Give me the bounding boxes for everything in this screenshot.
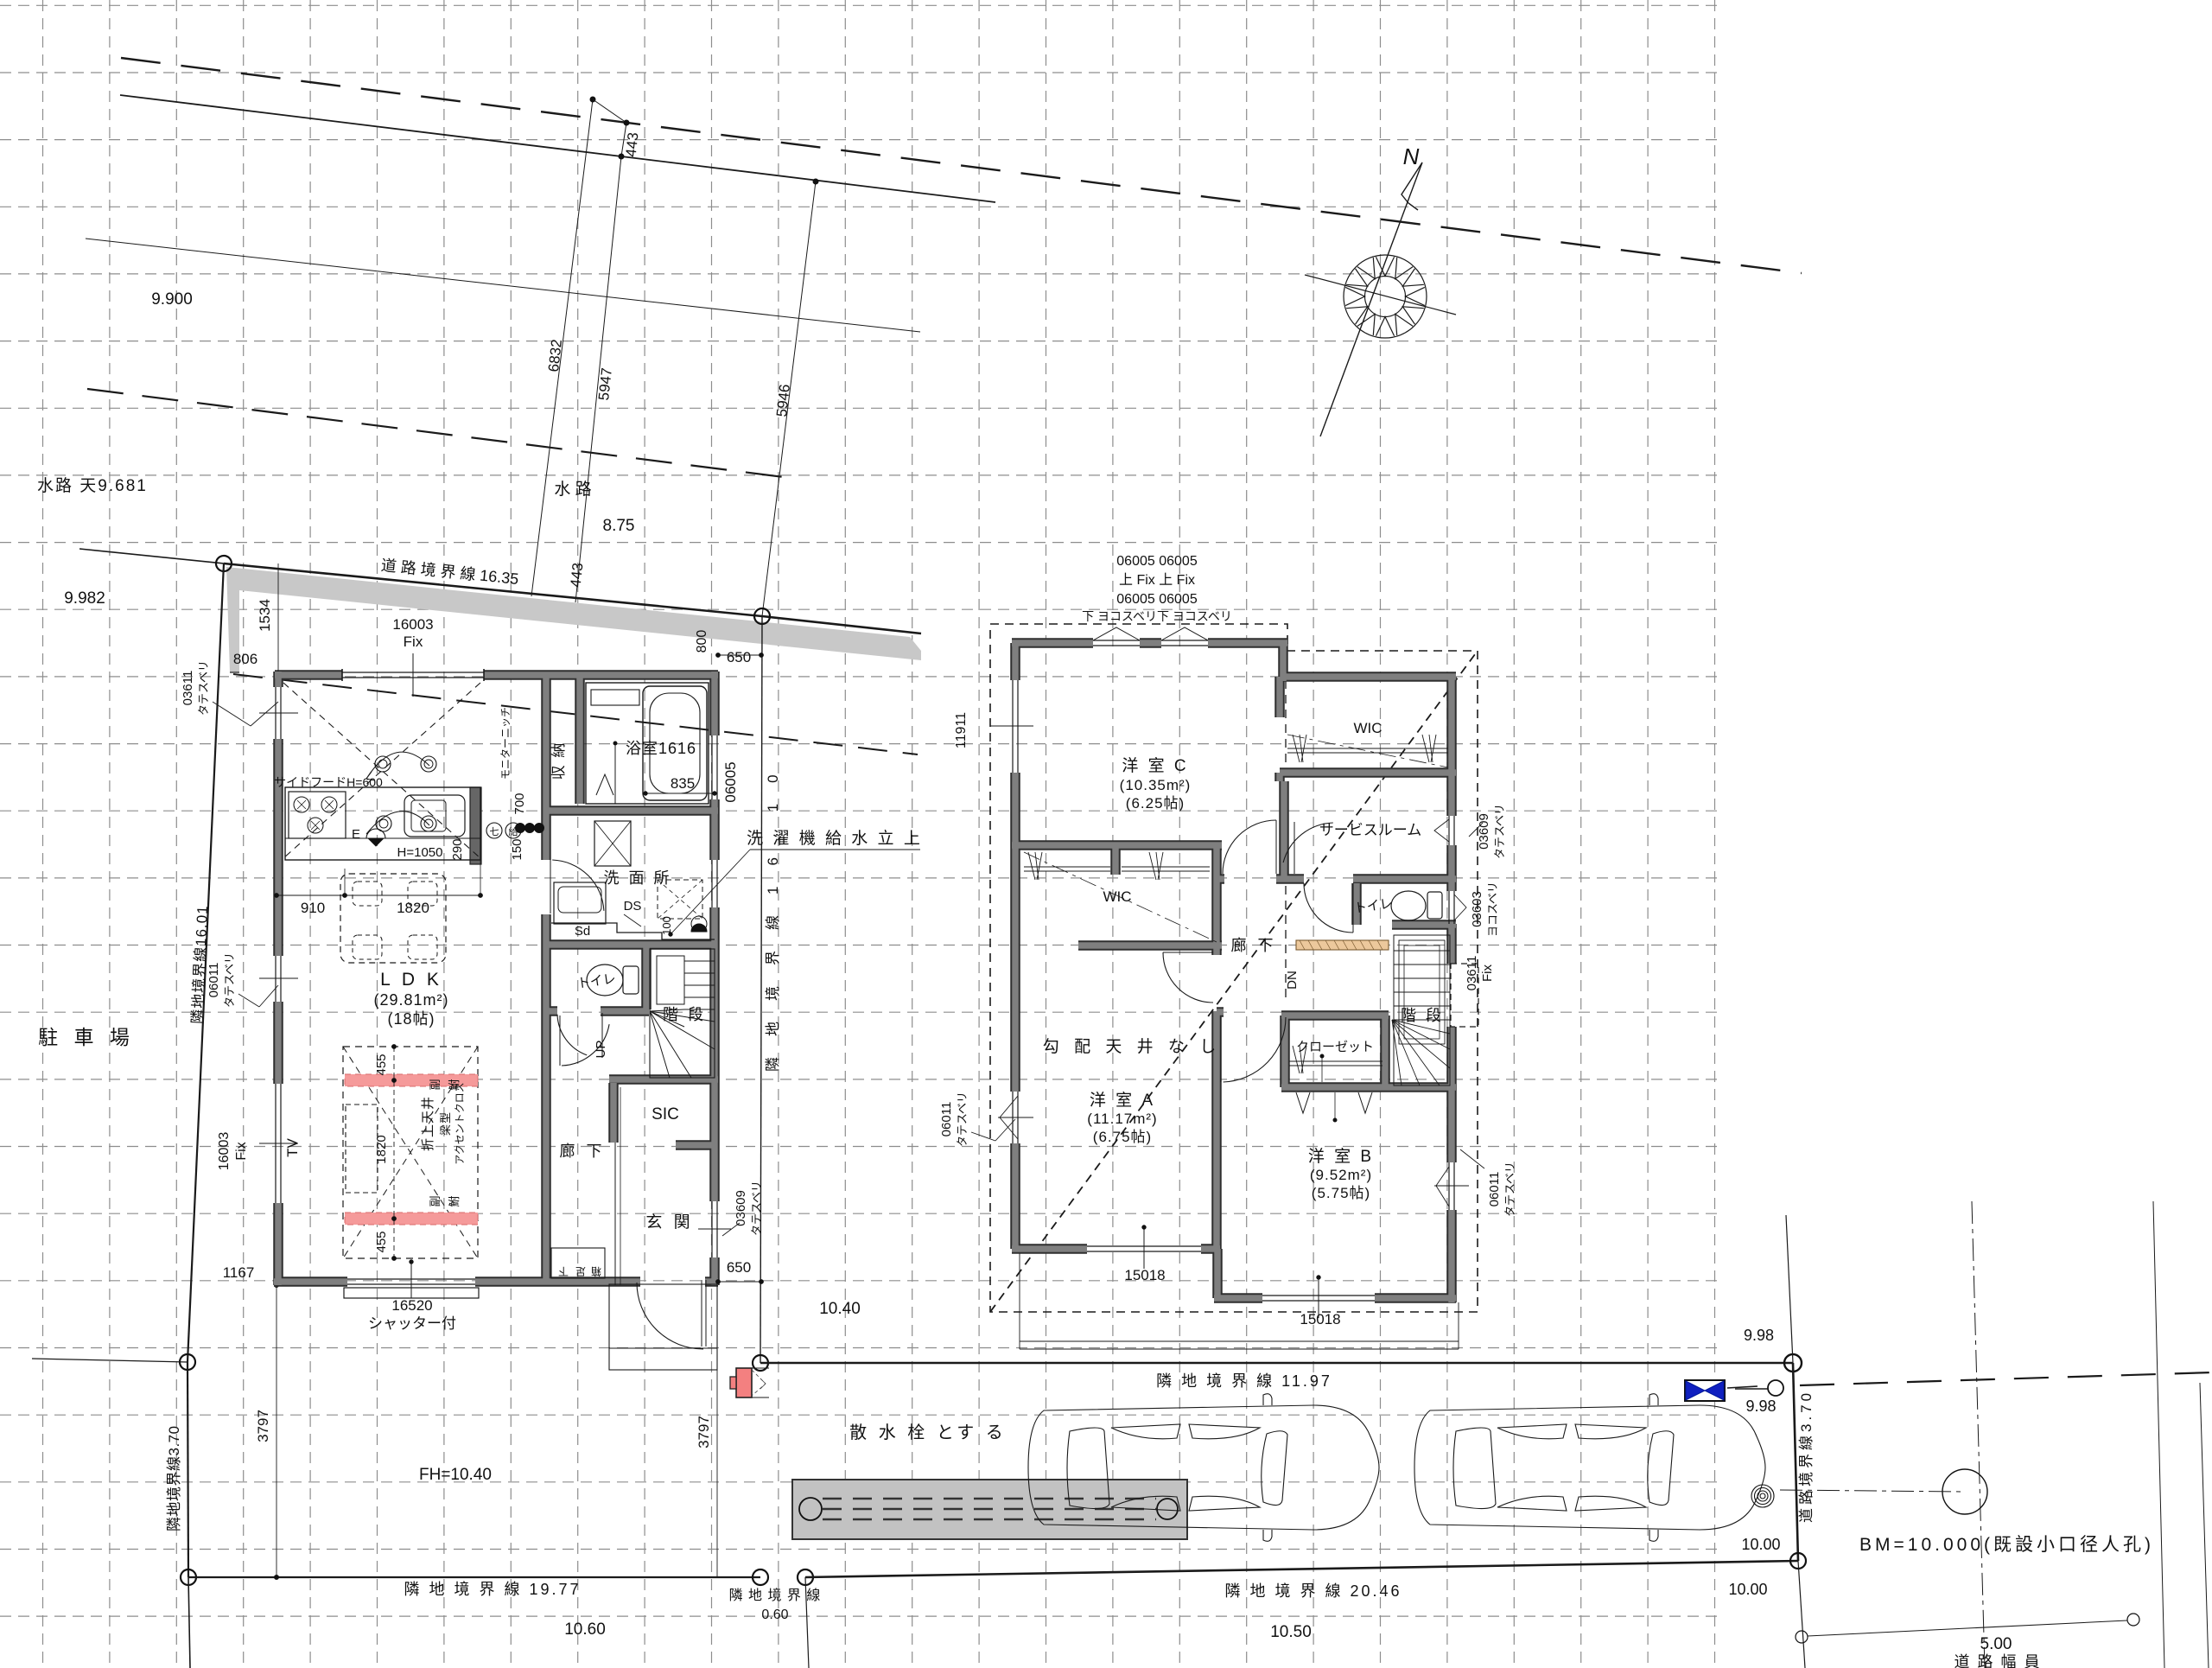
- svg-text:折上天井: 折上天井: [421, 1096, 435, 1151]
- svg-text:タテスベリ: タテスベリ: [1493, 804, 1506, 859]
- svg-text:鮒: 鮒: [448, 1079, 461, 1090]
- svg-text:150: 150: [510, 838, 524, 860]
- svg-text:03611: 03611: [181, 671, 195, 706]
- svg-text:タテスベリ: タテスベリ: [1503, 1162, 1516, 1217]
- svg-text:副: 副: [429, 1079, 442, 1090]
- svg-text:浴室1616: 浴室1616: [626, 740, 696, 757]
- svg-text:(10.35m²): (10.35m²): [1120, 777, 1192, 793]
- svg-text:Fix: Fix: [1480, 965, 1495, 982]
- svg-text:サービスルーム: サービスルーム: [1319, 822, 1422, 838]
- svg-text:290: 290: [450, 838, 465, 860]
- svg-text:洗 濯 機 給 水 立 上: 洗 濯 機 給 水 立 上: [747, 829, 923, 848]
- svg-text:シャッター付: シャッター付: [368, 1315, 456, 1332]
- svg-text:10.50: 10.50: [1270, 1623, 1312, 1641]
- svg-text:455: 455: [374, 1054, 389, 1075]
- svg-text:箱: 箱: [591, 1265, 601, 1278]
- svg-text:道路境界線3.70: 道路境界線3.70: [1798, 1390, 1815, 1523]
- svg-text:タテスベリ: タテスベリ: [956, 1092, 969, 1147]
- svg-text:8.75: 8.75: [603, 517, 635, 535]
- svg-text:FH=10.40: FH=10.40: [419, 1466, 492, 1484]
- svg-text:タテスベリ: タテスベリ: [750, 1181, 763, 1236]
- svg-text:800: 800: [695, 630, 709, 653]
- svg-text:洗 面 所: 洗 面 所: [603, 869, 671, 887]
- svg-text:タテスベリ: タテスベリ: [223, 952, 236, 1008]
- svg-text:06011: 06011: [207, 963, 221, 998]
- svg-text:タテスベリ: タテスベリ: [197, 660, 210, 716]
- svg-text:下 ヨコスベリ下 ヨコスベリ: 下 ヨコスベリ下 ヨコスベリ: [1082, 609, 1232, 623]
- svg-text:06005 06005: 06005 06005: [1116, 554, 1198, 569]
- svg-text:806: 806: [233, 651, 257, 667]
- svg-text:700: 700: [512, 793, 527, 814]
- svg-text:隣地境界線3.70: 隣地境界線3.70: [166, 1425, 182, 1531]
- svg-text:(9.52m²): (9.52m²): [1310, 1167, 1372, 1183]
- svg-text:Fix: Fix: [234, 1142, 249, 1160]
- svg-text:WIC: WIC: [1353, 720, 1382, 736]
- svg-text:5947: 5947: [595, 367, 615, 402]
- svg-text:隣 地 境 界 線 19.77: 隣 地 境 界 線 19.77: [404, 1581, 581, 1598]
- svg-text:TV: TV: [284, 1137, 301, 1156]
- svg-text:(11.17m²): (11.17m²): [1087, 1111, 1157, 1127]
- svg-text:06011: 06011: [1487, 1172, 1502, 1207]
- svg-text:玄 関: 玄 関: [645, 1213, 693, 1232]
- svg-text:水路 天9.681: 水路 天9.681: [37, 476, 148, 495]
- svg-text:Fix: Fix: [404, 633, 423, 650]
- svg-text:06005: 06005: [722, 761, 739, 802]
- svg-text:隣地境界線16.10: 隣地境界線16.10: [765, 754, 781, 1072]
- svg-text:廊 下: 廊 下: [559, 1143, 605, 1160]
- svg-text:L D K: L D K: [380, 970, 442, 990]
- svg-text:16003: 16003: [392, 616, 433, 633]
- svg-text:駐 車 場: 駐 車 場: [38, 1026, 135, 1048]
- svg-text:10.60: 10.60: [564, 1620, 606, 1639]
- svg-text:11911: 11911: [954, 712, 969, 748]
- svg-text:650: 650: [727, 649, 751, 665]
- svg-text:(6.75帖): (6.75帖): [1093, 1129, 1152, 1145]
- svg-text:道 路 幅 員: 道 路 幅 員: [1954, 1653, 2041, 1668]
- svg-text:鮒: 鮒: [448, 1195, 461, 1206]
- svg-text:06011: 06011: [939, 1102, 954, 1137]
- svg-text:1167: 1167: [223, 1264, 255, 1281]
- svg-text:階 段: 階 段: [1401, 1007, 1444, 1024]
- svg-text:03609: 03609: [734, 1190, 748, 1226]
- svg-text:5946: 5946: [773, 384, 793, 418]
- svg-text:9.98: 9.98: [1744, 1327, 1774, 1344]
- svg-text:1820: 1820: [397, 900, 429, 916]
- svg-text:隣 地 境 界 線 20.46: 隣 地 境 界 線 20.46: [1224, 1582, 1402, 1600]
- svg-text:5.00: 5.00: [1980, 1635, 2012, 1653]
- svg-text:03611: 03611: [1465, 956, 1479, 991]
- svg-text:足: 足: [575, 1265, 586, 1277]
- svg-text:洋 室 A: 洋 室 A: [1090, 1091, 1155, 1110]
- svg-text:10.00: 10.00: [1728, 1581, 1767, 1598]
- svg-text:9.98: 9.98: [1745, 1397, 1776, 1415]
- svg-text:650: 650: [727, 1259, 751, 1276]
- svg-text:10.00: 10.00: [1741, 1536, 1780, 1553]
- svg-text:七: 七: [490, 826, 499, 837]
- svg-text:3797: 3797: [255, 1410, 271, 1442]
- svg-text:下: 下: [558, 1265, 569, 1277]
- svg-text:WIC: WIC: [1103, 888, 1131, 905]
- svg-text:水 路: 水 路: [554, 480, 591, 499]
- svg-text:6832: 6832: [545, 339, 565, 373]
- svg-text:10.40: 10.40: [819, 1300, 861, 1318]
- svg-text:9.982: 9.982: [64, 589, 105, 608]
- svg-text:洋 室 C: 洋 室 C: [1122, 756, 1188, 775]
- svg-text:9.900: 9.900: [151, 290, 193, 309]
- svg-text:DS: DS: [624, 899, 642, 914]
- svg-text:階 段: 階 段: [663, 1006, 706, 1023]
- svg-text:1820: 1820: [374, 1135, 389, 1163]
- svg-text:隣 地 境 界 線: 隣 地 境 界 線: [729, 1587, 822, 1603]
- svg-text:洋 室 B: 洋 室 B: [1308, 1147, 1374, 1166]
- svg-text:16003: 16003: [217, 1132, 232, 1171]
- svg-text:E: E: [352, 827, 360, 842]
- svg-text:(5.75帖): (5.75帖): [1312, 1185, 1370, 1201]
- svg-text:3797: 3797: [696, 1416, 712, 1448]
- svg-text:DN: DN: [1285, 971, 1300, 990]
- svg-text:(29.81m²): (29.81m²): [373, 991, 448, 1009]
- svg-text:梁型: 梁型: [439, 1111, 452, 1136]
- svg-text:03603: 03603: [1470, 891, 1484, 927]
- svg-text:03609: 03609: [1477, 813, 1491, 850]
- svg-text:UP: UP: [594, 1041, 608, 1059]
- svg-text:H=1050: H=1050: [397, 845, 443, 860]
- svg-text:隣 地 境 界 線 11.97: 隣 地 境 界 線 11.97: [1156, 1372, 1332, 1390]
- svg-text:835: 835: [671, 775, 695, 792]
- svg-text:443: 443: [568, 562, 587, 588]
- svg-text:06005 06005: 06005 06005: [1116, 592, 1198, 607]
- svg-text:(6.25帖): (6.25帖): [1126, 795, 1185, 812]
- svg-text:443: 443: [623, 131, 642, 157]
- svg-text:455: 455: [374, 1231, 389, 1252]
- svg-text:廊 下: 廊 下: [1230, 937, 1276, 954]
- svg-text:モニターニッチ: モニターニッチ: [499, 707, 512, 780]
- svg-text:散 水 栓 とす る: 散 水 栓 とす る: [849, 1423, 1007, 1442]
- svg-text:アクセントクロス: アクセントクロス: [454, 1082, 466, 1164]
- svg-text:Sd: Sd: [575, 924, 590, 939]
- svg-text:0.60: 0.60: [761, 1608, 788, 1622]
- svg-text:16520: 16520: [391, 1297, 432, 1314]
- svg-text:910: 910: [301, 900, 325, 916]
- svg-text:N: N: [1403, 143, 1420, 169]
- svg-text:サイドフードH=600: サイドフードH=600: [274, 775, 383, 789]
- svg-text:1534: 1534: [257, 599, 273, 632]
- svg-text:上 Fix 上 Fix: 上 Fix 上 Fix: [1119, 572, 1195, 588]
- svg-text:15018: 15018: [1124, 1267, 1165, 1283]
- svg-text:収 納: 収 納: [550, 742, 567, 780]
- svg-text:SIC: SIC: [652, 1105, 679, 1124]
- svg-text:(18帖): (18帖): [387, 1010, 435, 1028]
- svg-text:副: 副: [429, 1195, 442, 1206]
- svg-text:ヨコスベリ: ヨコスベリ: [1486, 882, 1499, 937]
- svg-text:勾 配 天 井 な し: 勾 配 天 井 な し: [1043, 1037, 1221, 1056]
- svg-text:BM=10.000(既設小口径人孔): BM=10.000(既設小口径人孔): [1859, 1535, 2154, 1555]
- svg-text:クローゼット: クローゼット: [1296, 1040, 1374, 1054]
- svg-text:15018: 15018: [1300, 1311, 1340, 1327]
